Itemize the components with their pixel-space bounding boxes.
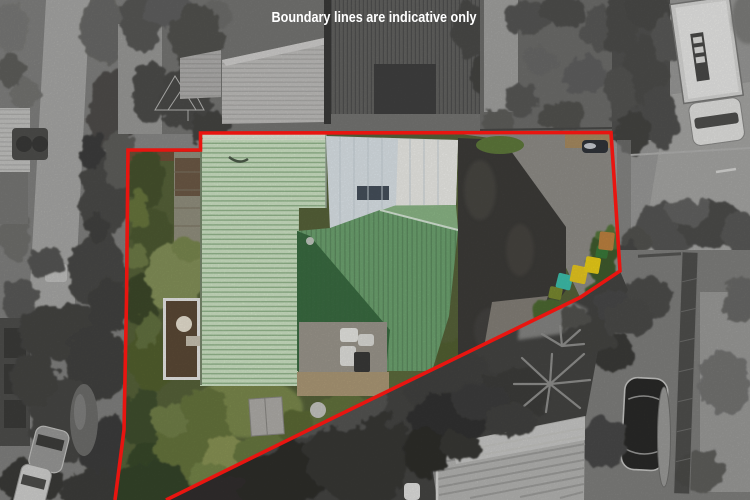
svg-text:Boundary lines are indicative: Boundary lines are indicative only <box>272 9 478 26</box>
